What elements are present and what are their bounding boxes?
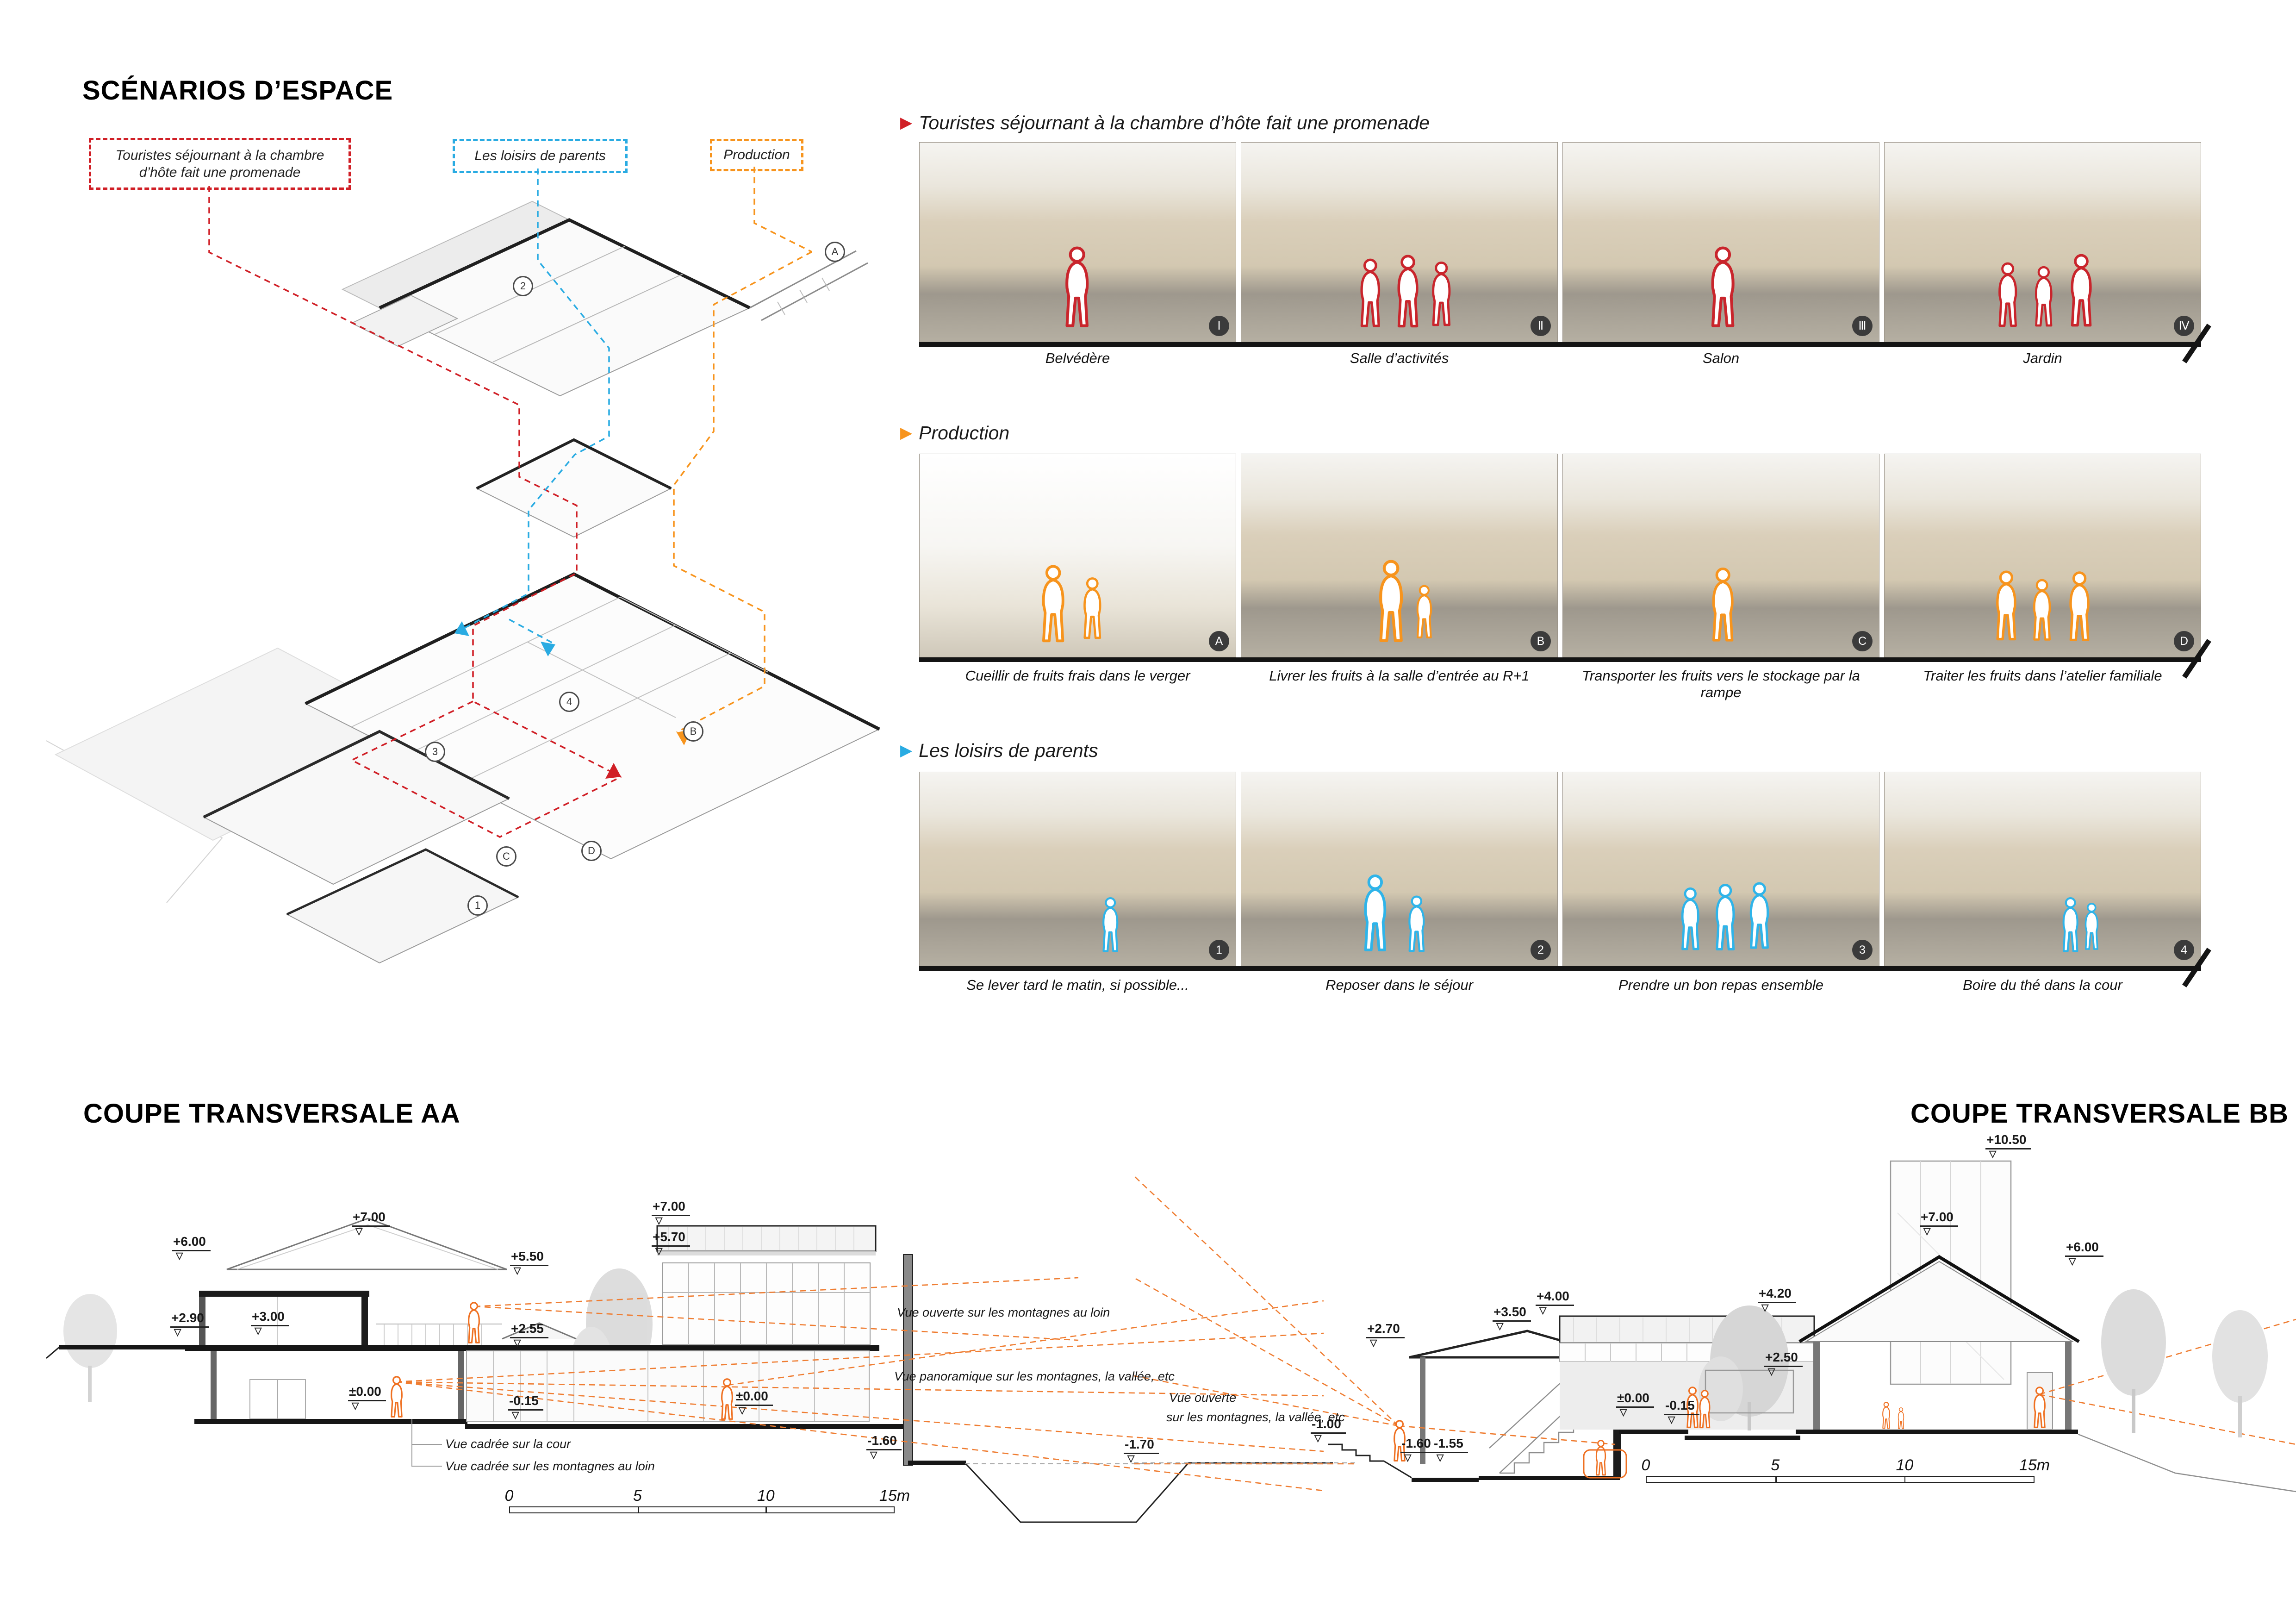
figure-silhouettes [1333,560,1466,645]
level-marker: +2.50▽ [1764,1351,1803,1375]
level-marker: +2.70▽ [1366,1322,1405,1347]
frame-marker: 2 [1531,940,1551,960]
axon-marker: A [825,242,845,262]
frame-caption: Belvédère [919,350,1236,367]
frame-caption: Boire du thé dans la cour [1884,977,2201,993]
elevation-triangle-icon: ▽ [1127,1455,1159,1462]
scale-tick-label: 10 [757,1487,775,1505]
scale-tick-label: 0 [505,1487,514,1505]
level-marker: +4.00▽ [1536,1290,1574,1314]
elevation-triangle-icon: ▽ [174,1329,209,1336]
scale-tick-label: 0 [1642,1456,1650,1474]
elevation-triangle-icon: ▽ [176,1252,211,1260]
axon-marker: 2 [513,276,533,296]
view-note: Vue cadrée sur les montagnes au loin [445,1459,655,1474]
figure-silhouettes [1976,246,2109,330]
level-marker: +2.90▽ [170,1312,209,1336]
frame-marker: Ⅳ [2174,316,2194,336]
axon-marker: C [496,846,516,867]
elevation-triangle-icon: ▽ [2069,1258,2103,1265]
scale-tick-label: 15m [2019,1456,2050,1474]
scenario-title: ▶Les loisirs de parents [900,740,1098,762]
figure-silhouettes [1333,246,1466,330]
level-marker: +2.55▽ [510,1322,548,1347]
level-marker: -1.70▽ [1124,1438,1159,1462]
scale-tick-label: 15m [879,1487,910,1505]
render-thumbnail: C [1562,454,1879,657]
scenario-title: ▶Touristes séjournant à la chambre d’hôt… [900,112,1430,134]
strip-baseline [919,657,2201,662]
elevation-triangle-icon: ▽ [1768,1368,1803,1375]
elevation-triangle-icon: ▽ [1314,1435,1346,1442]
level-marker: +7.00▽ [1920,1211,1958,1235]
scale-bar-bb: 0 5 10 15m [1646,1456,2035,1483]
frame-caption: Salle d’activités [1241,350,1558,367]
strip-baseline [919,966,2201,971]
render-thumbnail: D [1884,454,2201,657]
frame-caption: Transporter les fruits vers le stockage … [1562,668,1879,701]
axon-marker: 3 [425,742,445,762]
frame-caption: Cueillir de fruits frais dans le verger [919,668,1236,701]
figure-silhouettes [1011,560,1144,645]
figure-silhouettes [1011,246,1144,330]
level-marker: -1.60▽ [866,1434,902,1459]
elevation-triangle-icon: ▽ [739,1407,773,1414]
figure-silhouettes [1655,873,1787,954]
figure-silhouettes [1655,560,1787,645]
level-marker: +6.00▽ [2065,1241,2103,1265]
render-thumbnail: A [919,454,1236,657]
frame-marker: 1 [1209,940,1229,960]
frame-marker: Ⅲ [1852,316,1873,336]
figure-silhouettes [1976,560,2109,645]
triangle-bullet-icon: ▶ [900,114,912,131]
elevation-triangle-icon: ▽ [1761,1304,1796,1312]
view-note: Vue panoramique sur les montagnes, la va… [894,1369,1175,1384]
figure-silhouettes [1655,246,1787,330]
frame-marker: Ⅱ [1531,316,1551,336]
render-thumbnail: 4 [1884,772,2201,966]
frame-caption: Reposer dans le séjour [1241,977,1558,993]
frame-marker: D [2174,631,2194,651]
scale-bar [509,1506,895,1513]
frame-marker: C [1852,631,1873,651]
level-marker: +4.20▽ [1758,1287,1796,1312]
figure-silhouettes [1333,873,1466,954]
presentation-board: SCÉNARIOS D’ESPACE Touristes séjournant … [0,0,2296,1624]
triangle-bullet-icon: ▶ [900,742,912,759]
level-marker: +6.00▽ [172,1235,211,1260]
scenario-row-leisure: ▶Les loisirs de parents 1 2 3 4 Se lever [900,740,2203,1018]
render-thumbnail: Ⅱ [1241,142,1558,342]
elevation-triangle-icon: ▽ [1923,1228,1958,1235]
elevation-triangle-icon: ▽ [655,1248,690,1255]
elevation-triangle-icon: ▽ [514,1339,548,1347]
axon-marker: 1 [467,895,488,916]
level-marker: +7.00▽ [352,1211,390,1235]
render-thumbnail: Ⅲ [1562,142,1879,342]
level-marker: +3.00▽ [251,1310,289,1335]
elevation-triangle-icon: ▽ [1620,1409,1654,1416]
frame-caption: Prendre un bon repas ensemble [1562,977,1879,993]
scenario-row-tourists: ▶Touristes séjournant à la chambre d’hôt… [900,112,2203,390]
render-thumbnail: 1 [919,772,1236,966]
elevation-triangle-icon: ▽ [514,1267,548,1274]
view-note: Vue ouverte sur les montagnes au loin [897,1305,1110,1320]
level-marker: +10.50▽ [1985,1133,2031,1158]
frame-marker: 3 [1852,940,1873,960]
level-marker: -1.55▽ [1433,1437,1468,1462]
level-marker: +5.50▽ [510,1250,548,1274]
elevation-triangle-icon: ▽ [355,1228,390,1235]
scenario-row-production: ▶Production A B C D Cueillir de fruits f [900,422,2203,700]
scale-bar [1646,1476,2035,1483]
figure-silhouettes [1976,873,2109,954]
axon-marker: D [581,841,602,861]
level-marker: -0.15▽ [1664,1399,1699,1424]
elevation-triangle-icon: ▽ [1404,1454,1436,1462]
scale-tick-label: 5 [1771,1456,1780,1474]
elevation-triangle-icon: ▽ [1539,1307,1574,1314]
elevation-triangle-icon: ▽ [870,1451,902,1459]
render-thumbnail: Ⅰ [919,142,1236,342]
frame-marker: A [1209,631,1229,651]
level-marker: +7.00▽ [652,1200,690,1224]
frame-caption: Livrer les fruits à la salle d’entrée au… [1241,668,1558,701]
scale-tick-label: 10 [1896,1456,1914,1474]
view-note: sur les montagnes, la vallée, etc [1166,1410,1345,1424]
page-title: SCÉNARIOS D’ESPACE [82,75,393,106]
triangle-bullet-icon: ▶ [900,424,912,442]
elevation-triangle-icon: ▽ [1437,1454,1468,1462]
render-thumbnail: Ⅳ [1884,142,2201,342]
elevation-triangle-icon: ▽ [352,1402,386,1410]
section-aa-title: COUPE TRANSVERSALE AA [83,1098,460,1129]
frame-caption: Traiter les fruits dans l’atelier famili… [1884,668,2201,701]
elevation-triangle-icon: ▽ [1496,1323,1531,1330]
elevation-triangle-icon: ▽ [512,1412,543,1419]
frame-marker: B [1531,631,1551,651]
render-thumbnail: 2 [1241,772,1558,966]
figure-silhouettes [1011,873,1144,954]
frame-marker: Ⅰ [1209,316,1229,336]
frame-caption: Salon [1562,350,1879,367]
view-note: Vue ouverte [1169,1391,1236,1405]
level-marker: ±0.00▽ [348,1385,386,1410]
scale-bar-aa: 0 5 10 15m [509,1487,895,1513]
level-marker: ±0.00▽ [1616,1392,1654,1416]
render-thumbnail: 3 [1562,772,1879,966]
level-marker: ±0.00▽ [735,1390,773,1414]
frame-caption: Jardin [1884,350,2201,367]
elevation-triangle-icon: ▽ [1668,1416,1699,1424]
elevation-triangle-icon: ▽ [1989,1150,2031,1158]
elevation-triangle-icon: ▽ [1370,1339,1405,1347]
level-marker: +3.50▽ [1493,1305,1531,1330]
axon-marker: B [683,721,703,742]
scale-tick-label: 5 [633,1487,642,1505]
view-note: Vue cadrée sur la cour [445,1437,571,1451]
elevation-triangle-icon: ▽ [255,1327,289,1335]
level-marker: -1.60▽ [1400,1437,1436,1462]
frame-marker: 4 [2174,940,2194,960]
level-marker: -0.15▽ [508,1394,543,1419]
axonometric-diagram [28,153,907,1079]
elevation-triangle-icon: ▽ [655,1217,690,1224]
strip-baseline [919,342,2201,347]
level-marker: +5.70▽ [652,1230,690,1255]
render-thumbnail: B [1241,454,1558,657]
scenario-title: ▶Production [900,422,1009,444]
frame-caption: Se lever tard le matin, si possible... [919,977,1236,993]
axon-marker: 4 [559,692,579,712]
